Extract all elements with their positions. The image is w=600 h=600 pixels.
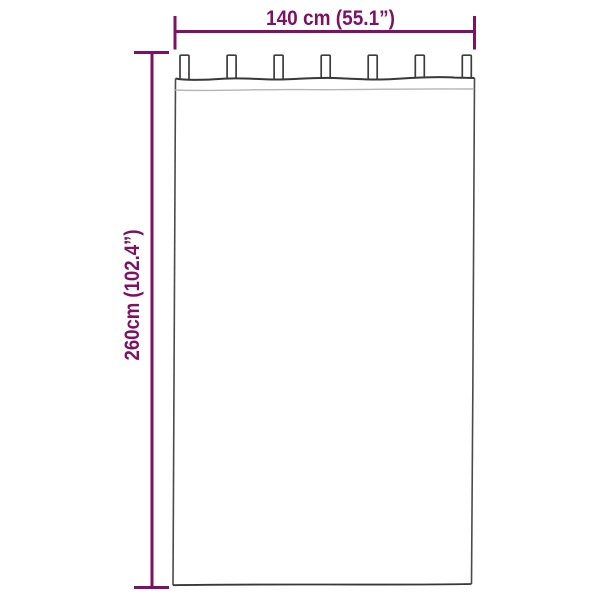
svg-text:140 cm (55.1”): 140 cm (55.1”) bbox=[266, 7, 395, 30]
svg-text:260cm (102.4”): 260cm (102.4”) bbox=[121, 230, 144, 361]
